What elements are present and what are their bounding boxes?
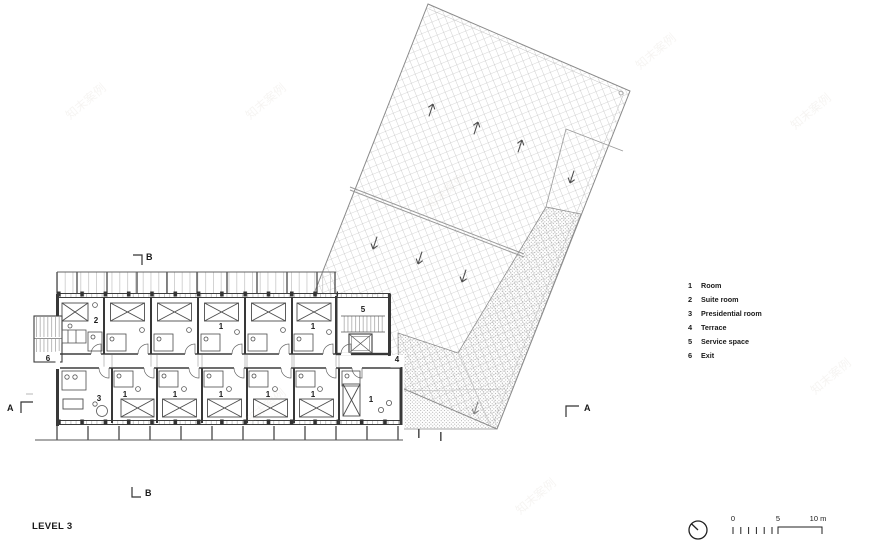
section-letter: A [584, 403, 591, 413]
room-label-exit: 6 [46, 354, 51, 363]
floor-plan-page: 2 1 1 3 1 1 1 1 1 1 5 4 6 A A B B 1 [0, 0, 880, 549]
core-stair [341, 316, 385, 332]
legend-label: Terrace [701, 323, 726, 332]
section-marker-b-bottom: B [132, 487, 152, 498]
legend-num: 1 [688, 281, 692, 290]
room-label-terrace: 4 [395, 355, 400, 364]
room-label: 1 [311, 390, 316, 399]
elevator [349, 334, 372, 353]
legend-label: Room [701, 281, 721, 290]
svg-text:知末案例: 知末案例 [787, 90, 833, 132]
svg-text:知末案例: 知末案例 [512, 475, 558, 517]
terrace-post [440, 432, 442, 441]
section-marker-a-left: A [7, 402, 33, 413]
terrace-post [418, 429, 420, 438]
legend-label: Suite room [701, 295, 739, 304]
legend-num: 5 [688, 337, 692, 346]
room-label-service: 5 [361, 305, 366, 314]
page-title: LEVEL 3 [32, 521, 72, 532]
room-label: 1 [219, 322, 224, 331]
section-letter: B [145, 488, 152, 498]
section-marker-a-right: A [566, 403, 591, 417]
legend-label: Presidential room [701, 309, 762, 318]
legend: 1 Room 2 Suite room 3 Presidential room … [688, 281, 762, 360]
room-label: 1 [123, 390, 128, 399]
north-indicator-icon [689, 521, 707, 539]
legend-num: 6 [688, 351, 692, 360]
scale-tick-label: 10 m [810, 514, 827, 523]
svg-text:知末案例: 知末案例 [242, 80, 288, 122]
svg-text:知末案例: 知末案例 [62, 80, 108, 122]
room-label: 1 [369, 395, 374, 404]
room-label: 1 [311, 322, 316, 331]
legend-label: Exit [701, 351, 715, 360]
section-bracket [133, 255, 142, 265]
section-marker-b-top: B [133, 252, 153, 265]
room-label-suite: 2 [94, 316, 99, 325]
building-plan: 2 1 1 3 1 1 1 1 1 1 5 4 6 [26, 266, 404, 450]
scale-bar: 0 5 10 m [731, 514, 826, 534]
svg-text:知末案例: 知末案例 [632, 30, 678, 72]
top-balcony [57, 272, 336, 293]
room-label: 1 [173, 390, 178, 399]
section-letter: B [146, 252, 153, 262]
legend-num: 2 [688, 295, 692, 304]
section-letter: A [7, 403, 14, 413]
legend-label: Service space [701, 337, 749, 346]
room-label-presidential: 3 [97, 394, 102, 403]
room-label: 1 [219, 390, 224, 399]
scale-tick-label: 0 [731, 514, 735, 523]
section-bracket [132, 487, 141, 497]
floor-plan-drawing: 2 1 1 3 1 1 1 1 1 1 5 4 6 A A B B 1 [0, 0, 880, 549]
scale-tick-label: 5 [776, 514, 780, 523]
legend-num: 3 [688, 309, 692, 318]
section-bracket [566, 406, 579, 417]
legend-num: 4 [688, 323, 693, 332]
svg-text:知末案例: 知末案例 [807, 355, 853, 397]
